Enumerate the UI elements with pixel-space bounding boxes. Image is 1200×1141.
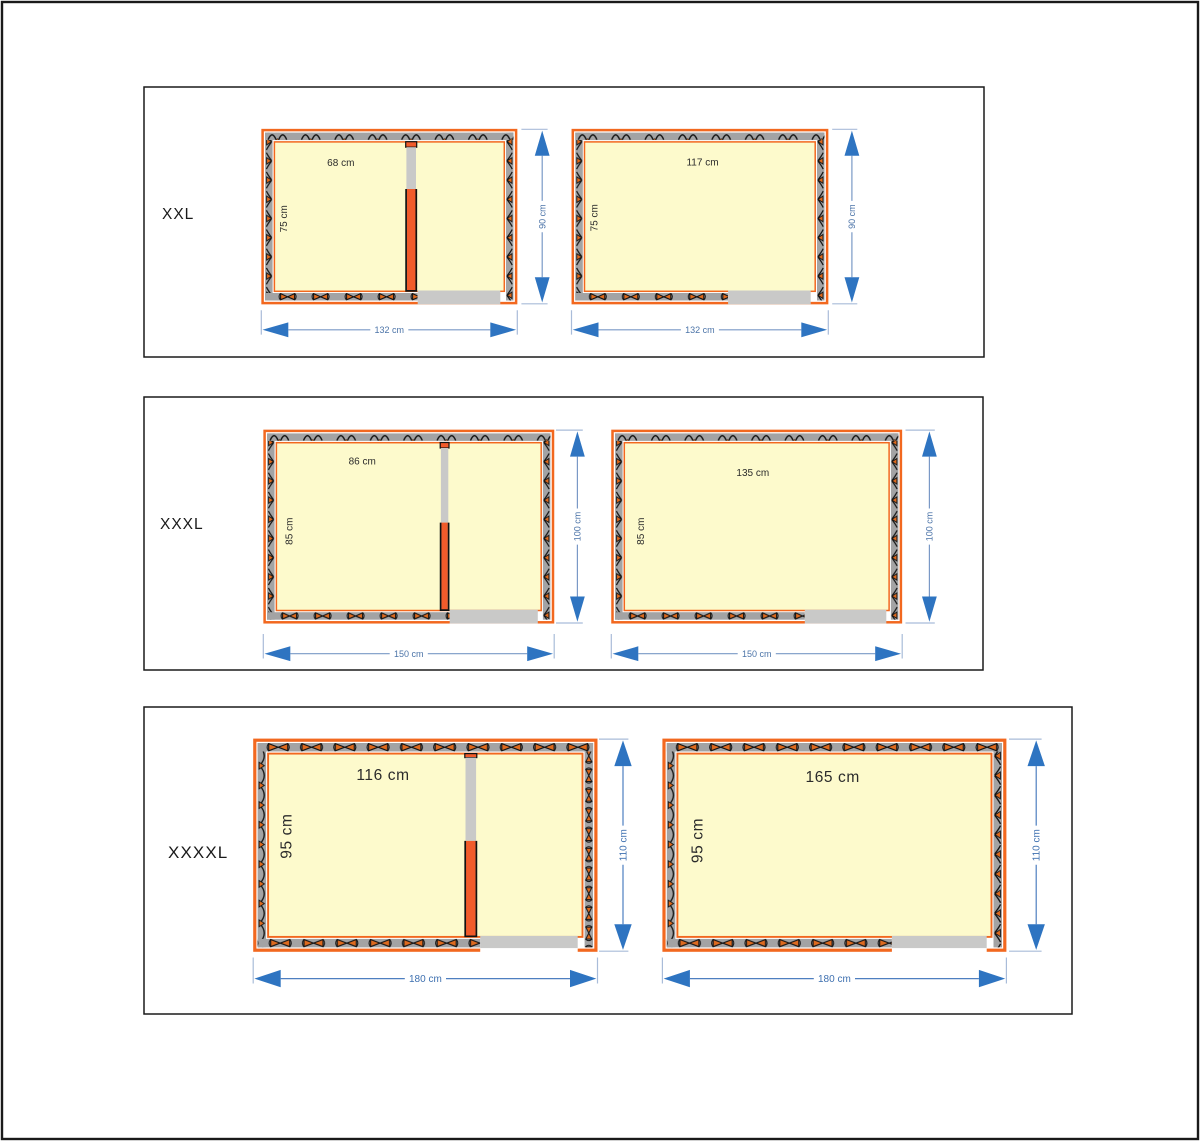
svg-text:85 cm: 85 cm [636,518,647,545]
svg-text:90 cm: 90 cm [537,204,547,229]
svg-text:90 cm: 90 cm [847,204,857,229]
svg-text:100 cm: 100 cm [573,512,583,542]
svg-text:100 cm: 100 cm [925,512,935,542]
svg-text:132 cm: 132 cm [685,325,715,335]
svg-text:110 cm: 110 cm [619,829,630,861]
svg-text:75 cm: 75 cm [589,204,600,231]
svg-text:110 cm: 110 cm [1032,829,1043,861]
svg-text:150 cm: 150 cm [394,649,424,659]
svg-text:85 cm: 85 cm [285,518,296,545]
svg-text:165 cm: 165 cm [805,769,859,786]
svg-text:116 cm: 116 cm [356,767,409,784]
svg-text:XXXL: XXXL [160,516,204,533]
svg-text:86 cm: 86 cm [349,457,376,468]
svg-text:95 cm: 95 cm [278,813,295,858]
svg-text:75 cm: 75 cm [279,205,290,232]
svg-text:150 cm: 150 cm [742,649,772,659]
svg-text:XXXXL: XXXXL [168,843,228,862]
svg-text:132 cm: 132 cm [375,325,405,335]
svg-text:180 cm: 180 cm [409,974,442,985]
svg-text:68 cm: 68 cm [327,158,354,169]
svg-text:135 cm: 135 cm [736,468,769,479]
svg-text:117 cm: 117 cm [686,157,718,168]
svg-text:XXL: XXL [162,206,194,223]
svg-text:95 cm: 95 cm [689,818,706,863]
svg-text:180 cm: 180 cm [818,974,851,985]
